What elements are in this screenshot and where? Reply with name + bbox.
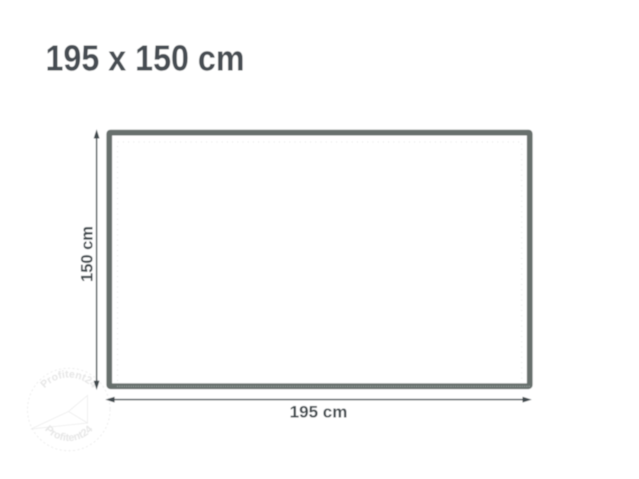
svg-text:195 cm: 195 cm [290,403,348,422]
svg-text:150 cm: 150 cm [78,226,96,282]
svg-text:195 x 150 cm: 195 x 150 cm [46,38,245,79]
